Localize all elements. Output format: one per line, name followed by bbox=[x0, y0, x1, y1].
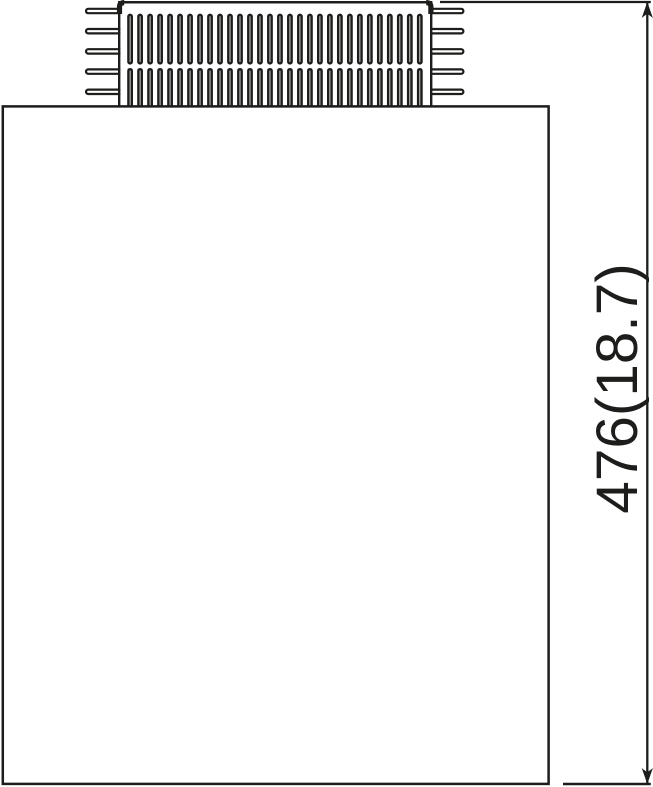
svg-text:476(18.7): 476(18.7) bbox=[585, 263, 650, 513]
